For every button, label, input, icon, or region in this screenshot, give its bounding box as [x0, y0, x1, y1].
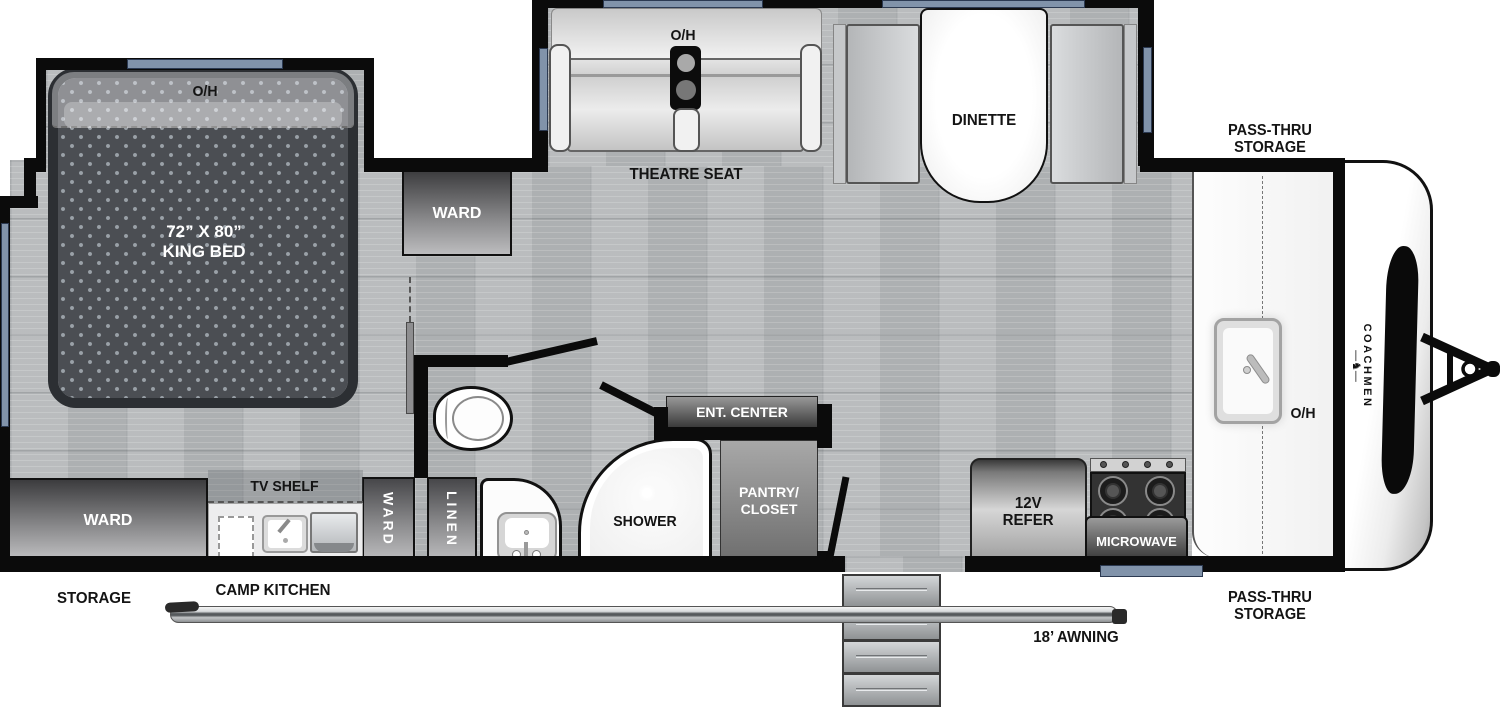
step-tread: [842, 574, 941, 608]
step-grip: [856, 588, 927, 591]
entry-steps: [842, 574, 941, 707]
awning-end-cap-left: [165, 601, 199, 613]
pass-thru-top-line1: PASS-THRU: [1228, 122, 1312, 139]
entry-door-panel: [829, 477, 846, 562]
floorplan-canvas: COACHMEN —♞— O/H 72” X 80” KING BED WARD…: [0, 0, 1500, 707]
bath-door-panel: [601, 385, 658, 414]
pass-thru-bottom-label: PASS-THRU STORAGE: [1204, 589, 1336, 623]
bath-door-swing: [506, 341, 597, 362]
pass-thru-bottom-line1: PASS-THRU: [1228, 589, 1312, 606]
pass-thru-bottom-line2: STORAGE: [1234, 606, 1306, 623]
camp-kitchen-label: CAMP KITCHEN: [198, 582, 348, 599]
pass-thru-top-label: PASS-THRU STORAGE: [1204, 122, 1336, 156]
step-grip: [856, 688, 927, 691]
awning-label: 18’ AWNING: [1020, 629, 1133, 646]
awning-rail: [170, 606, 1118, 623]
pass-thru-top-line2: STORAGE: [1234, 139, 1306, 156]
awning-end-cap-right: [1112, 609, 1127, 624]
step-tread: [842, 673, 941, 707]
step-tread: [842, 640, 941, 674]
storage-label: STORAGE: [38, 590, 151, 607]
step-grip: [856, 655, 927, 658]
